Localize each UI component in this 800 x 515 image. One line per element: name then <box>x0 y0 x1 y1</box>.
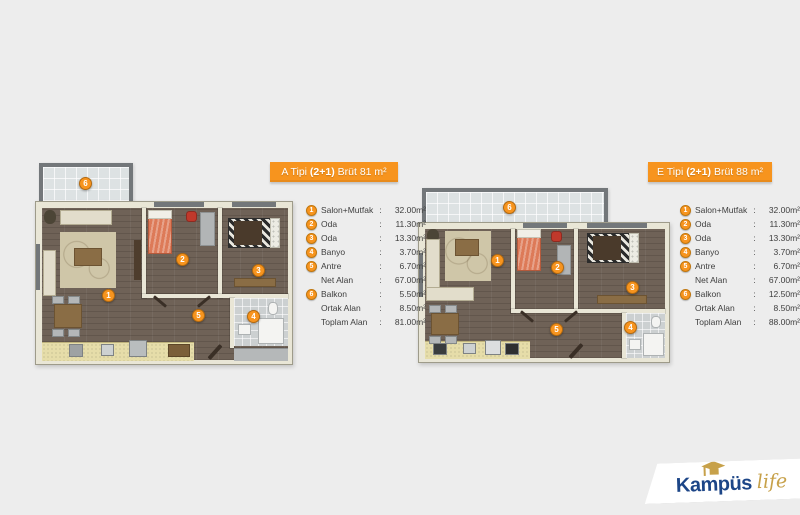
legend-label: Net Alan <box>321 275 378 285</box>
armchair <box>551 231 562 242</box>
legend-marker <box>680 303 691 314</box>
legend-marker: 6 <box>306 289 317 300</box>
fridge <box>485 340 501 355</box>
dining-chair <box>52 329 64 337</box>
plan-e-title-prefix: E Tipi <box>657 166 686 178</box>
stairwell-area <box>234 348 288 361</box>
legend-value: 12.50m² <box>757 289 800 299</box>
graduation-cap-icon <box>701 461 725 476</box>
room-marker-4: 4 <box>247 310 260 323</box>
logo-brand: Kampüs <box>676 472 753 498</box>
window-lintel <box>587 223 647 228</box>
legend-row: Net Alan:67.00m² <box>680 273 800 287</box>
sink <box>238 324 251 335</box>
floor-plan-a: 6 1 2 3 5 4 <box>35 163 305 365</box>
legend-marker: 6 <box>680 289 691 300</box>
legend-label: Ortak Alan <box>321 303 378 313</box>
dining-chair <box>52 296 64 304</box>
legend-marker: 2 <box>680 219 691 230</box>
legend-row: Ortak Alan:8.50m² <box>680 301 800 315</box>
corner-sofa-horizontal <box>426 287 474 301</box>
wall <box>142 208 146 298</box>
legend-marker: 3 <box>680 233 691 244</box>
legend-label: Oda <box>695 219 752 229</box>
legend-row: Ortak Alan:8.50m² <box>306 301 426 315</box>
pillow <box>517 229 541 238</box>
logo-brand-text: Kampüs <box>676 472 753 497</box>
legend-marker <box>306 303 317 314</box>
room-marker-6: 6 <box>79 177 92 190</box>
legend-label: Banyo <box>695 247 752 257</box>
legend-row: 4Banyo:3.70m² <box>680 245 800 259</box>
legend-value: 67.00m² <box>757 275 800 285</box>
room-marker-6: 6 <box>503 201 516 214</box>
plan-e-title-type: (2+1) <box>686 166 711 178</box>
legend-marker <box>680 275 691 286</box>
room-marker-5: 5 <box>550 323 563 336</box>
headboard <box>270 218 280 248</box>
legend-row: 5Antre:6.70m² <box>306 259 426 273</box>
toilet <box>268 302 278 315</box>
bed-center <box>593 236 621 260</box>
legend-label: Salon+Mutfak <box>321 205 378 215</box>
legend-value: 5.50m² <box>383 289 426 299</box>
apartment-body-a <box>35 201 293 365</box>
room-marker-1: 1 <box>491 254 504 267</box>
room-marker-3: 3 <box>626 281 639 294</box>
legend-row: 1Salon+Mutfak:32.00m² <box>680 203 800 217</box>
stove <box>433 343 447 355</box>
stove <box>69 344 83 357</box>
cabinet <box>505 343 519 355</box>
legend-marker: 2 <box>306 219 317 230</box>
legend-row: 2Oda:11.30m² <box>680 217 800 231</box>
kitchen-sink <box>101 344 114 356</box>
dresser <box>597 295 647 304</box>
plan-a-title-prefix: A Tipi <box>281 166 310 178</box>
dining-chair <box>445 305 457 313</box>
side-window <box>36 244 40 290</box>
legend-value: 32.00m² <box>757 205 800 215</box>
legend-value: 11.30m² <box>757 219 800 229</box>
legend-row: 2Oda:11.30m² <box>306 217 426 231</box>
window-lintel <box>523 223 567 228</box>
legend-marker: 5 <box>306 261 317 272</box>
sink <box>629 339 641 350</box>
legend-marker <box>306 317 317 328</box>
plan-a-title-suffix: Brüt 81 m² <box>335 166 387 178</box>
plan-a-legend: 1Salon+Mutfak:32.00m² 2Oda:11.30m² 3Oda:… <box>306 203 426 329</box>
coffee-table <box>74 248 102 266</box>
legend-marker: 4 <box>306 247 317 258</box>
sofa <box>60 210 112 225</box>
legend-value: 6.70m² <box>383 261 426 271</box>
plan-e-legend: 1Salon+Mutfak:32.00m² 2Oda:11.30m² 3Oda:… <box>680 203 800 329</box>
plan-a-title-type: (2+1) <box>310 166 335 178</box>
legend-value: 8.50m² <box>757 303 800 313</box>
legend-marker: 5 <box>680 261 691 272</box>
fridge <box>129 340 147 357</box>
room-marker-1: 1 <box>102 289 115 302</box>
legend-row: 3Oda:13.30m² <box>306 231 426 245</box>
dining-table <box>54 304 82 328</box>
plan-a-title: A Tipi (2+1) Brüt 81 m² <box>270 162 398 182</box>
legend-label: Balkon <box>321 289 378 299</box>
headboard <box>629 233 639 263</box>
legend-marker: 4 <box>680 247 691 258</box>
legend-value: 11.30m² <box>383 219 426 229</box>
legend-label: Oda <box>321 233 378 243</box>
legend-row: Net Alan:67.00m² <box>306 273 426 287</box>
wall <box>574 229 578 313</box>
toilet <box>651 316 661 328</box>
wardrobe <box>200 212 215 246</box>
legend-label: Balkon <box>695 289 752 299</box>
legend-label: Toplam Alan <box>321 317 378 327</box>
legend-value: 32.00m² <box>383 205 426 215</box>
legend-value: 13.30m² <box>383 233 426 243</box>
plan-e-title-suffix: Brüt 88 m² <box>711 166 763 178</box>
tv-unit <box>134 240 141 280</box>
cabinet <box>168 344 190 357</box>
legend-label: Net Alan <box>695 275 752 285</box>
legend-value: 8.50m² <box>383 303 426 313</box>
dining-table <box>431 313 459 335</box>
legend-label: Oda <box>695 233 752 243</box>
legend-label: Toplam Alan <box>695 317 752 327</box>
legend-row: Toplam Alan:88.00m² <box>680 315 800 329</box>
legend-value: 3.70m² <box>383 247 426 257</box>
dresser <box>234 278 276 287</box>
wall <box>511 229 515 313</box>
room-marker-3: 3 <box>252 264 265 277</box>
legend-value: 6.70m² <box>757 261 800 271</box>
legend-row: 4Banyo:3.70m² <box>306 245 426 259</box>
legend-value: 81.00m² <box>383 317 426 327</box>
legend-label: Antre <box>695 261 752 271</box>
kitchen-sink <box>463 343 476 354</box>
shower <box>258 318 284 344</box>
dining-chair <box>68 296 80 304</box>
plan-e-title: E Tipi (2+1) Brüt 88 m² <box>648 162 772 182</box>
plant <box>44 210 56 224</box>
legend-label: Antre <box>321 261 378 271</box>
legend-label: Oda <box>321 219 378 229</box>
legend-row: 6Balkon:12.50m² <box>680 287 800 301</box>
legend-label: Salon+Mutfak <box>695 205 752 215</box>
legend-row: 3Oda:13.30m² <box>680 231 800 245</box>
logo-band: Kampüs life <box>643 458 800 504</box>
window-lintel <box>154 202 204 207</box>
pillow <box>148 210 172 219</box>
legend-value: 67.00m² <box>383 275 426 285</box>
legend-marker: 3 <box>306 233 317 244</box>
legend-value: 88.00m² <box>757 317 800 327</box>
shower <box>643 333 664 356</box>
legend-marker <box>306 275 317 286</box>
dining-chair <box>429 305 441 313</box>
room-marker-4: 4 <box>624 321 637 334</box>
legend-row: 5Antre:6.70m² <box>680 259 800 273</box>
legend-marker <box>680 317 691 328</box>
legend-label: Ortak Alan <box>695 303 752 313</box>
armchair <box>186 211 197 222</box>
logo-life-text: life <box>756 470 787 493</box>
floor-plan-e: 6 1 2 3 5 4 <box>418 188 670 363</box>
dining-chair <box>68 329 80 337</box>
legend-marker: 1 <box>306 205 317 216</box>
legend-marker: 1 <box>680 205 691 216</box>
legend-row: Toplam Alan:81.00m² <box>306 315 426 329</box>
legend-row: 1Salon+Mutfak:32.00m² <box>306 203 426 217</box>
legend-value: 3.70m² <box>757 247 800 257</box>
legend-row: 6Balkon:5.50m² <box>306 287 426 301</box>
window-lintel <box>232 202 276 207</box>
legend-label: Banyo <box>321 247 378 257</box>
room-marker-2: 2 <box>176 253 189 266</box>
coffee-table <box>455 239 479 256</box>
room-marker-5: 5 <box>192 309 205 322</box>
wall <box>218 208 222 298</box>
legend-value: 13.30m² <box>757 233 800 243</box>
room-marker-2: 2 <box>551 261 564 274</box>
bed-center <box>234 221 262 245</box>
side-sofa <box>43 250 56 296</box>
